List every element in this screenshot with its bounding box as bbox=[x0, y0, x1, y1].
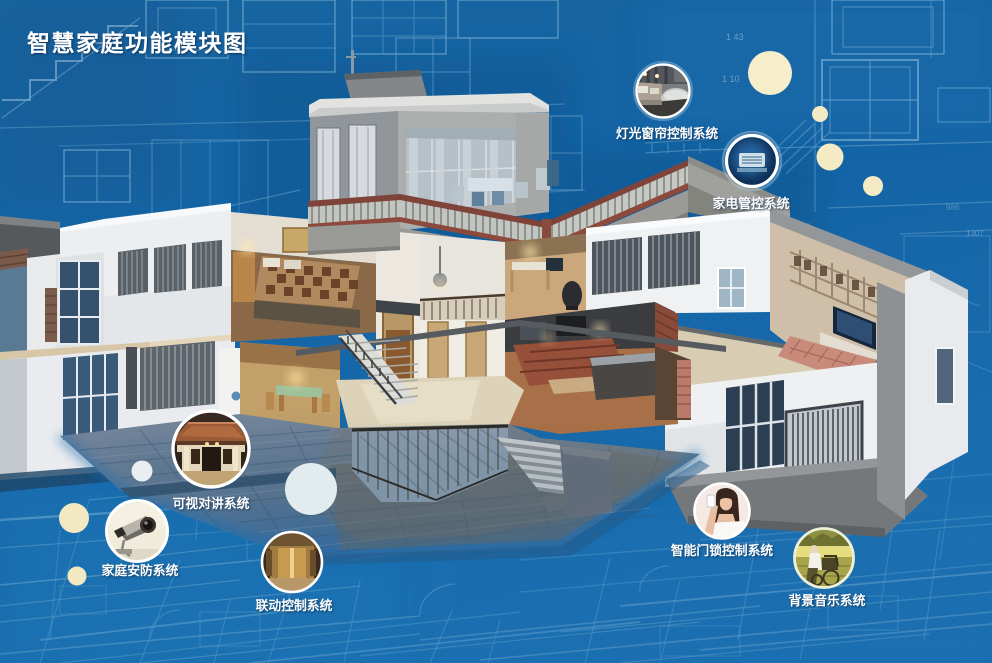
svg-text:1 43: 1 43 bbox=[726, 32, 744, 42]
svg-text:家庭安防系统: 家庭安防系统 bbox=[102, 563, 179, 578]
svg-text:背景音乐系统: 背景音乐系统 bbox=[789, 593, 866, 608]
svg-text:联动控制系统: 联动控制系统 bbox=[256, 598, 333, 613]
svg-text:986: 986 bbox=[946, 203, 960, 212]
svg-text:1 10: 1 10 bbox=[722, 74, 740, 84]
svg-text:灯光窗帘控制系统: 灯光窗帘控制系统 bbox=[616, 126, 719, 141]
svg-text:智能门锁控制系统: 智能门锁控制系统 bbox=[671, 543, 774, 558]
svg-text:1307: 1307 bbox=[966, 229, 984, 238]
svg-text:智慧家庭功能模块图: 智慧家庭功能模块图 bbox=[27, 30, 248, 56]
svg-text:可视对讲系统: 可视对讲系统 bbox=[173, 496, 250, 511]
svg-text:家电管控系统: 家电管控系统 bbox=[713, 196, 790, 211]
